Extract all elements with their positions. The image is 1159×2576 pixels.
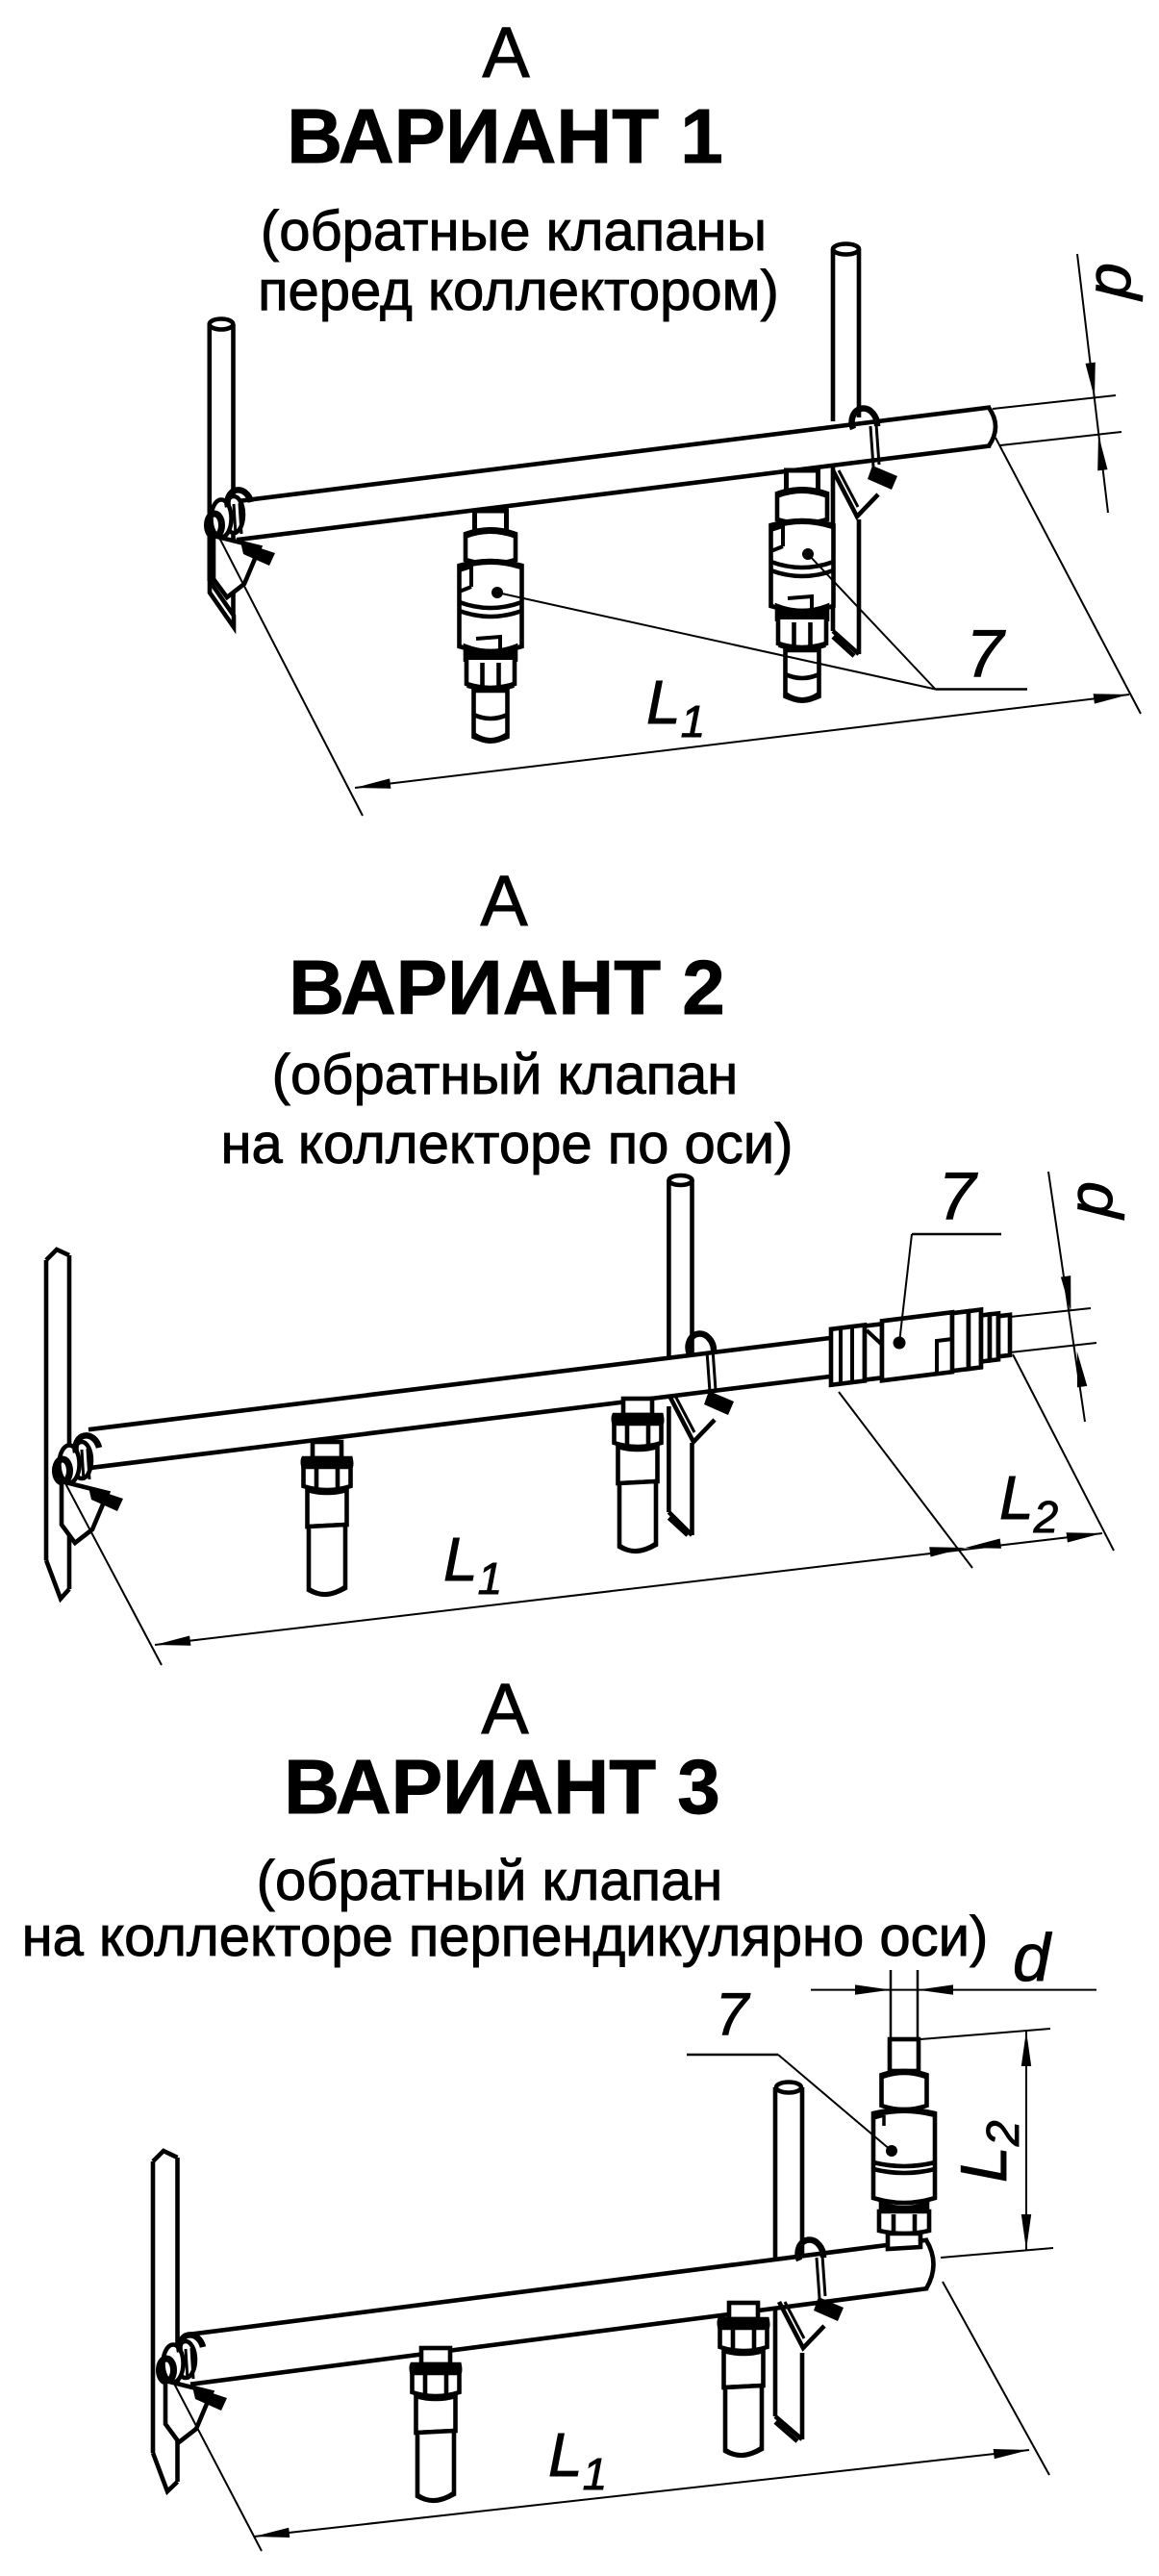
svg-text:7: 7 xyxy=(939,1158,979,1233)
svg-text:d: d xyxy=(1013,1920,1052,1995)
svg-text:L2: L2 xyxy=(999,1463,1058,1542)
svg-text:ВАРИАНТ 2: ВАРИАНТ 2 xyxy=(289,945,725,1030)
svg-text:А: А xyxy=(480,861,528,941)
svg-text:p: p xyxy=(1053,1179,1126,1221)
svg-text:ВАРИАНТ 1: ВАРИАНТ 1 xyxy=(287,93,723,179)
svg-text:L1: L1 xyxy=(443,1525,502,1604)
svg-text:перед коллектором): перед коллектором) xyxy=(258,260,779,322)
svg-text:(обратный клапан: (обратный клапан xyxy=(257,1850,723,1912)
svg-text:L1: L1 xyxy=(548,2420,607,2499)
svg-text:L2: L2 xyxy=(947,2120,1029,2183)
svg-text:(обратные клапаны: (обратные клапаны xyxy=(261,200,767,263)
svg-text:7: 7 xyxy=(716,1982,751,2048)
svg-text:на коллекторе перпендикулярно: на коллекторе перпендикулярно оси) xyxy=(22,1906,989,1968)
svg-text:p: p xyxy=(1071,261,1145,302)
svg-text:А: А xyxy=(481,1669,529,1749)
svg-text:ВАРИАНТ 3: ВАРИАНТ 3 xyxy=(284,1744,720,1830)
svg-text:на коллекторе по оси): на коллекторе по оси) xyxy=(221,1113,794,1175)
svg-text:7: 7 xyxy=(967,616,1007,691)
svg-text:А: А xyxy=(482,13,530,92)
svg-text:(обратный клапан: (обратный клапан xyxy=(272,1044,739,1106)
svg-text:L1: L1 xyxy=(646,668,705,746)
